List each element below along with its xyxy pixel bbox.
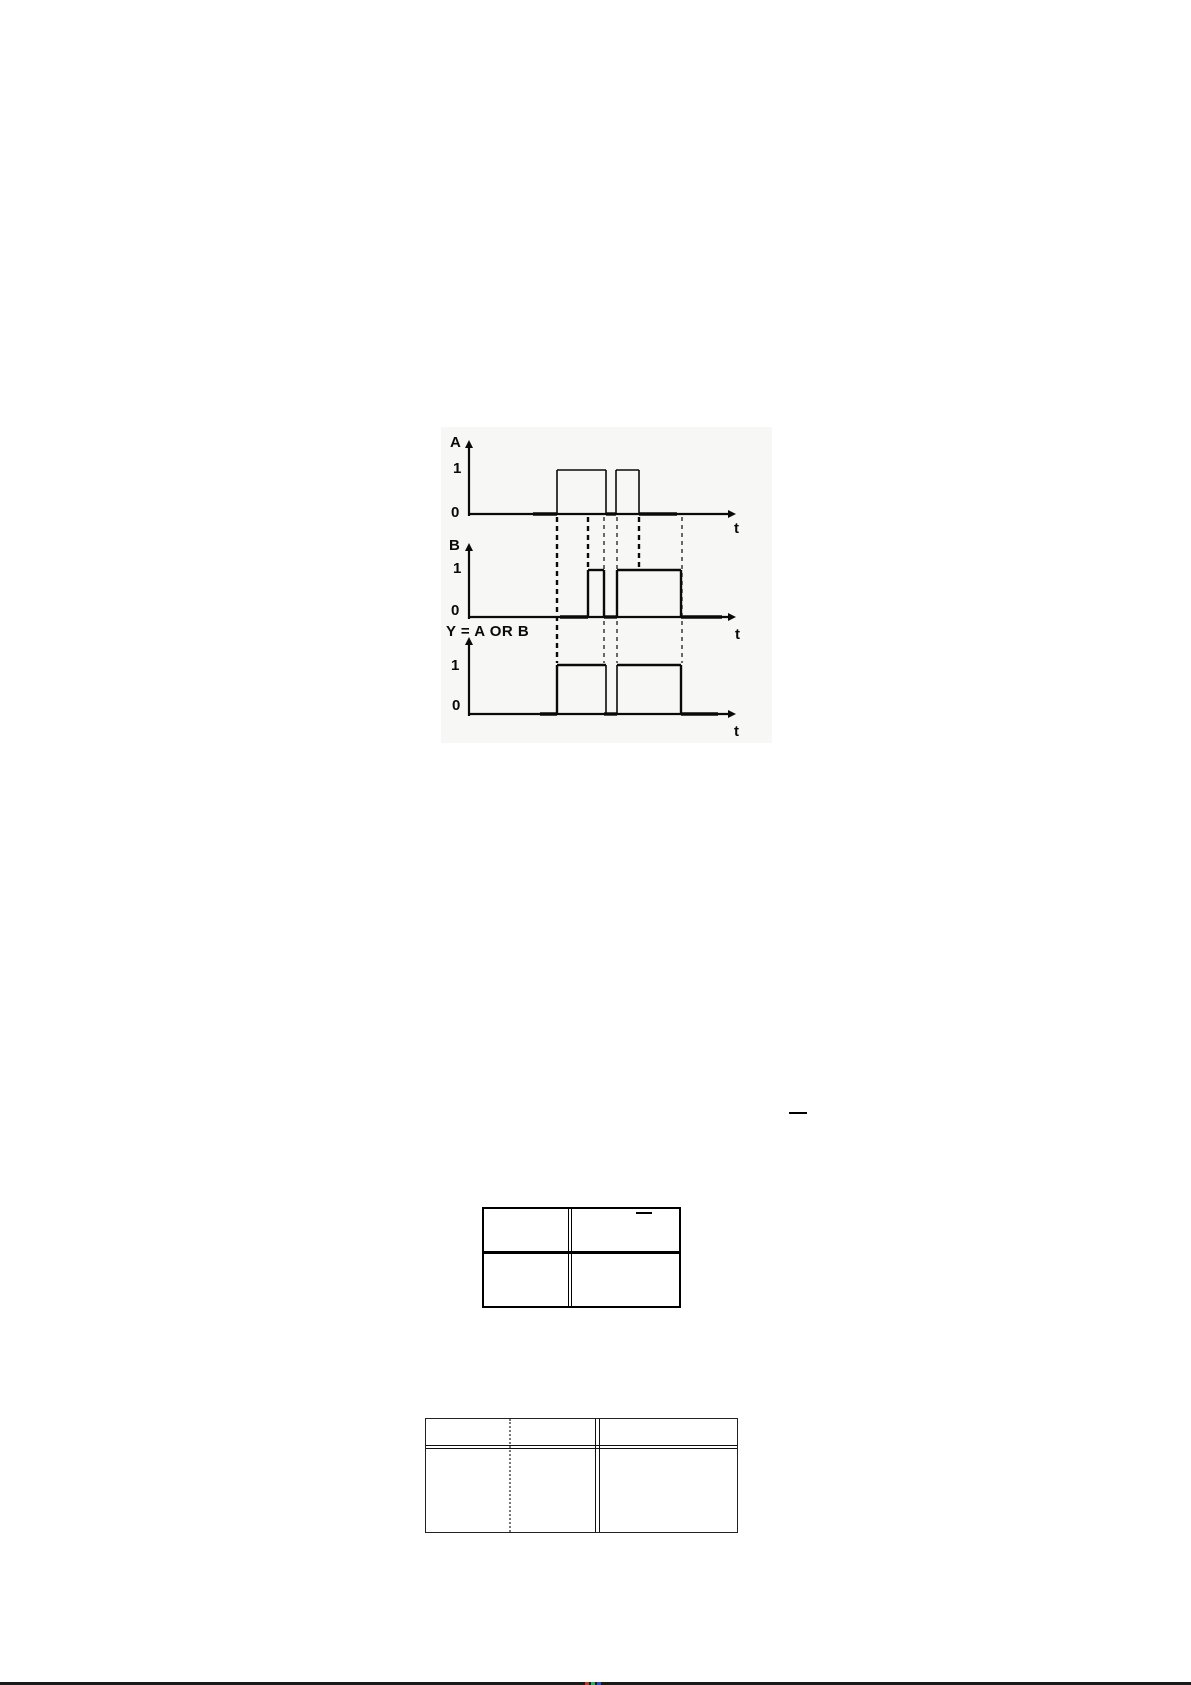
signal-y-low-tick: 0 (452, 698, 461, 713)
table1-row-divider (484, 1251, 679, 1254)
table1-overline-mark (636, 1212, 652, 1214)
truth-table-empty-1 (482, 1207, 681, 1308)
signal-b-low-tick: 0 (451, 603, 460, 618)
signal-a-axis-label: A (450, 435, 461, 450)
signal-b-time-label: t (735, 627, 741, 642)
signal-a-time-label: t (734, 521, 740, 536)
table2-dotted-column-divider (509, 1419, 511, 1532)
table2-header-rule (426, 1445, 737, 1449)
output-expression-label: Y = A OR B (446, 624, 529, 639)
document-page: A10tB10tY = A OR B10t (0, 0, 1191, 1685)
formula-overline-mark (789, 1112, 807, 1114)
signal-b-axis-label: B (449, 538, 460, 553)
signal-b-high-tick: 1 (453, 561, 462, 576)
signal-a-high-tick: 1 (453, 461, 462, 476)
timing-diagram-figure (441, 427, 772, 743)
table1-col-divider (568, 1209, 572, 1306)
signal-y-time-label: t (734, 724, 740, 739)
table2-double-column-divider (595, 1419, 600, 1532)
signal-y-high-tick: 1 (451, 658, 460, 673)
signal-a-low-tick: 0 (451, 505, 460, 520)
truth-table-empty-2 (425, 1418, 738, 1533)
